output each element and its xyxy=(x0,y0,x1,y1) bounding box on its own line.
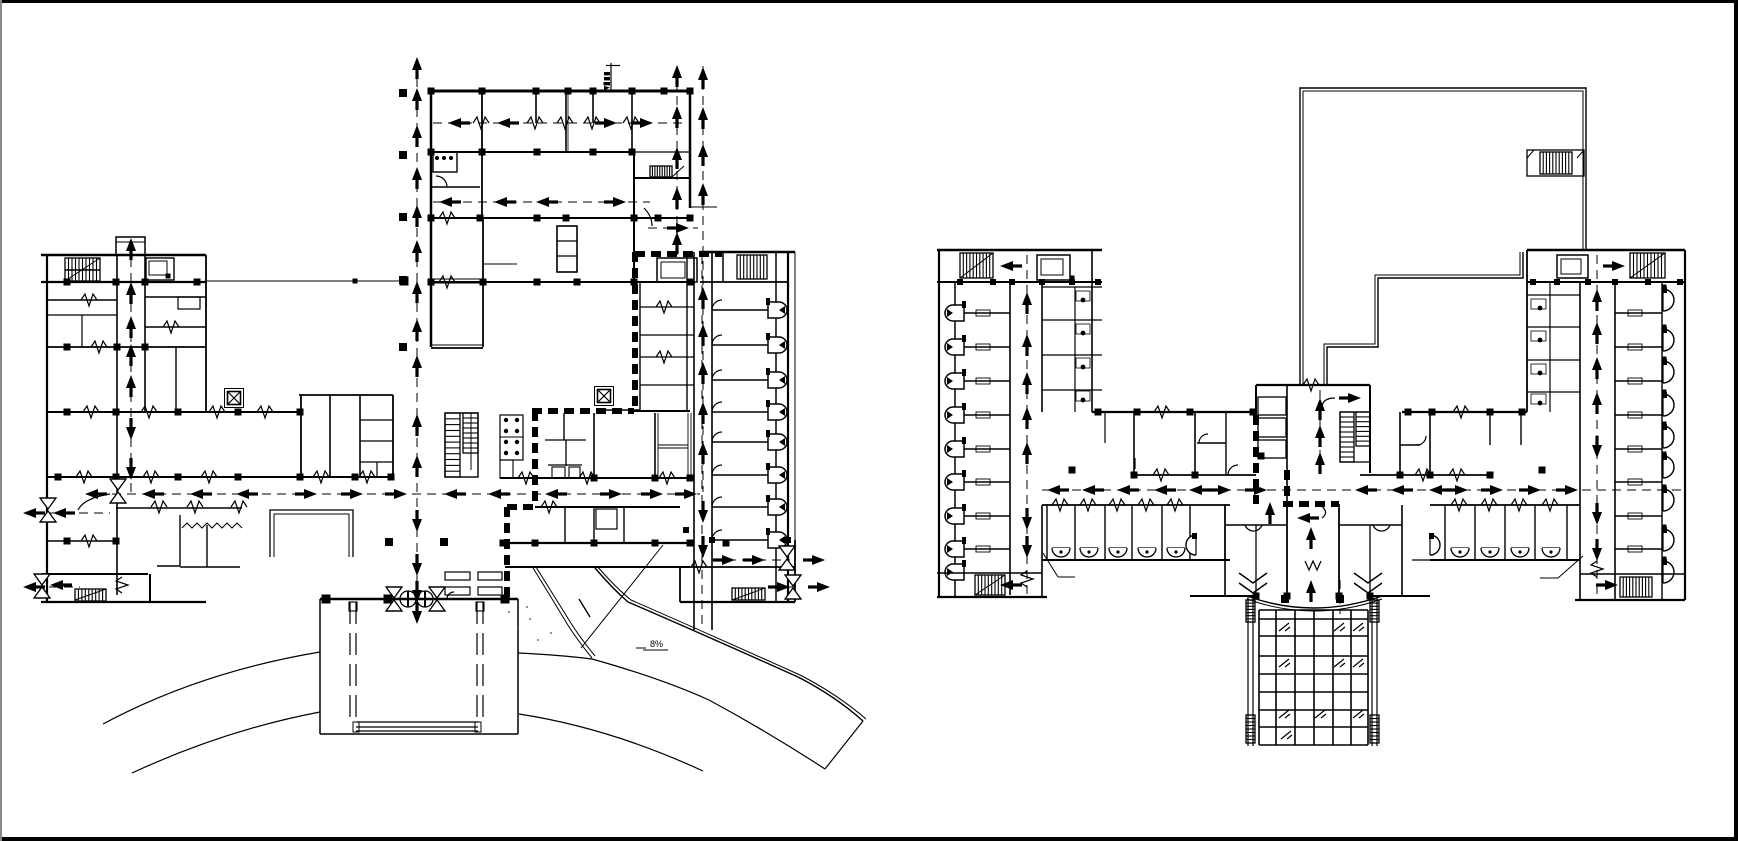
svg-text:8%: 8% xyxy=(650,639,663,649)
